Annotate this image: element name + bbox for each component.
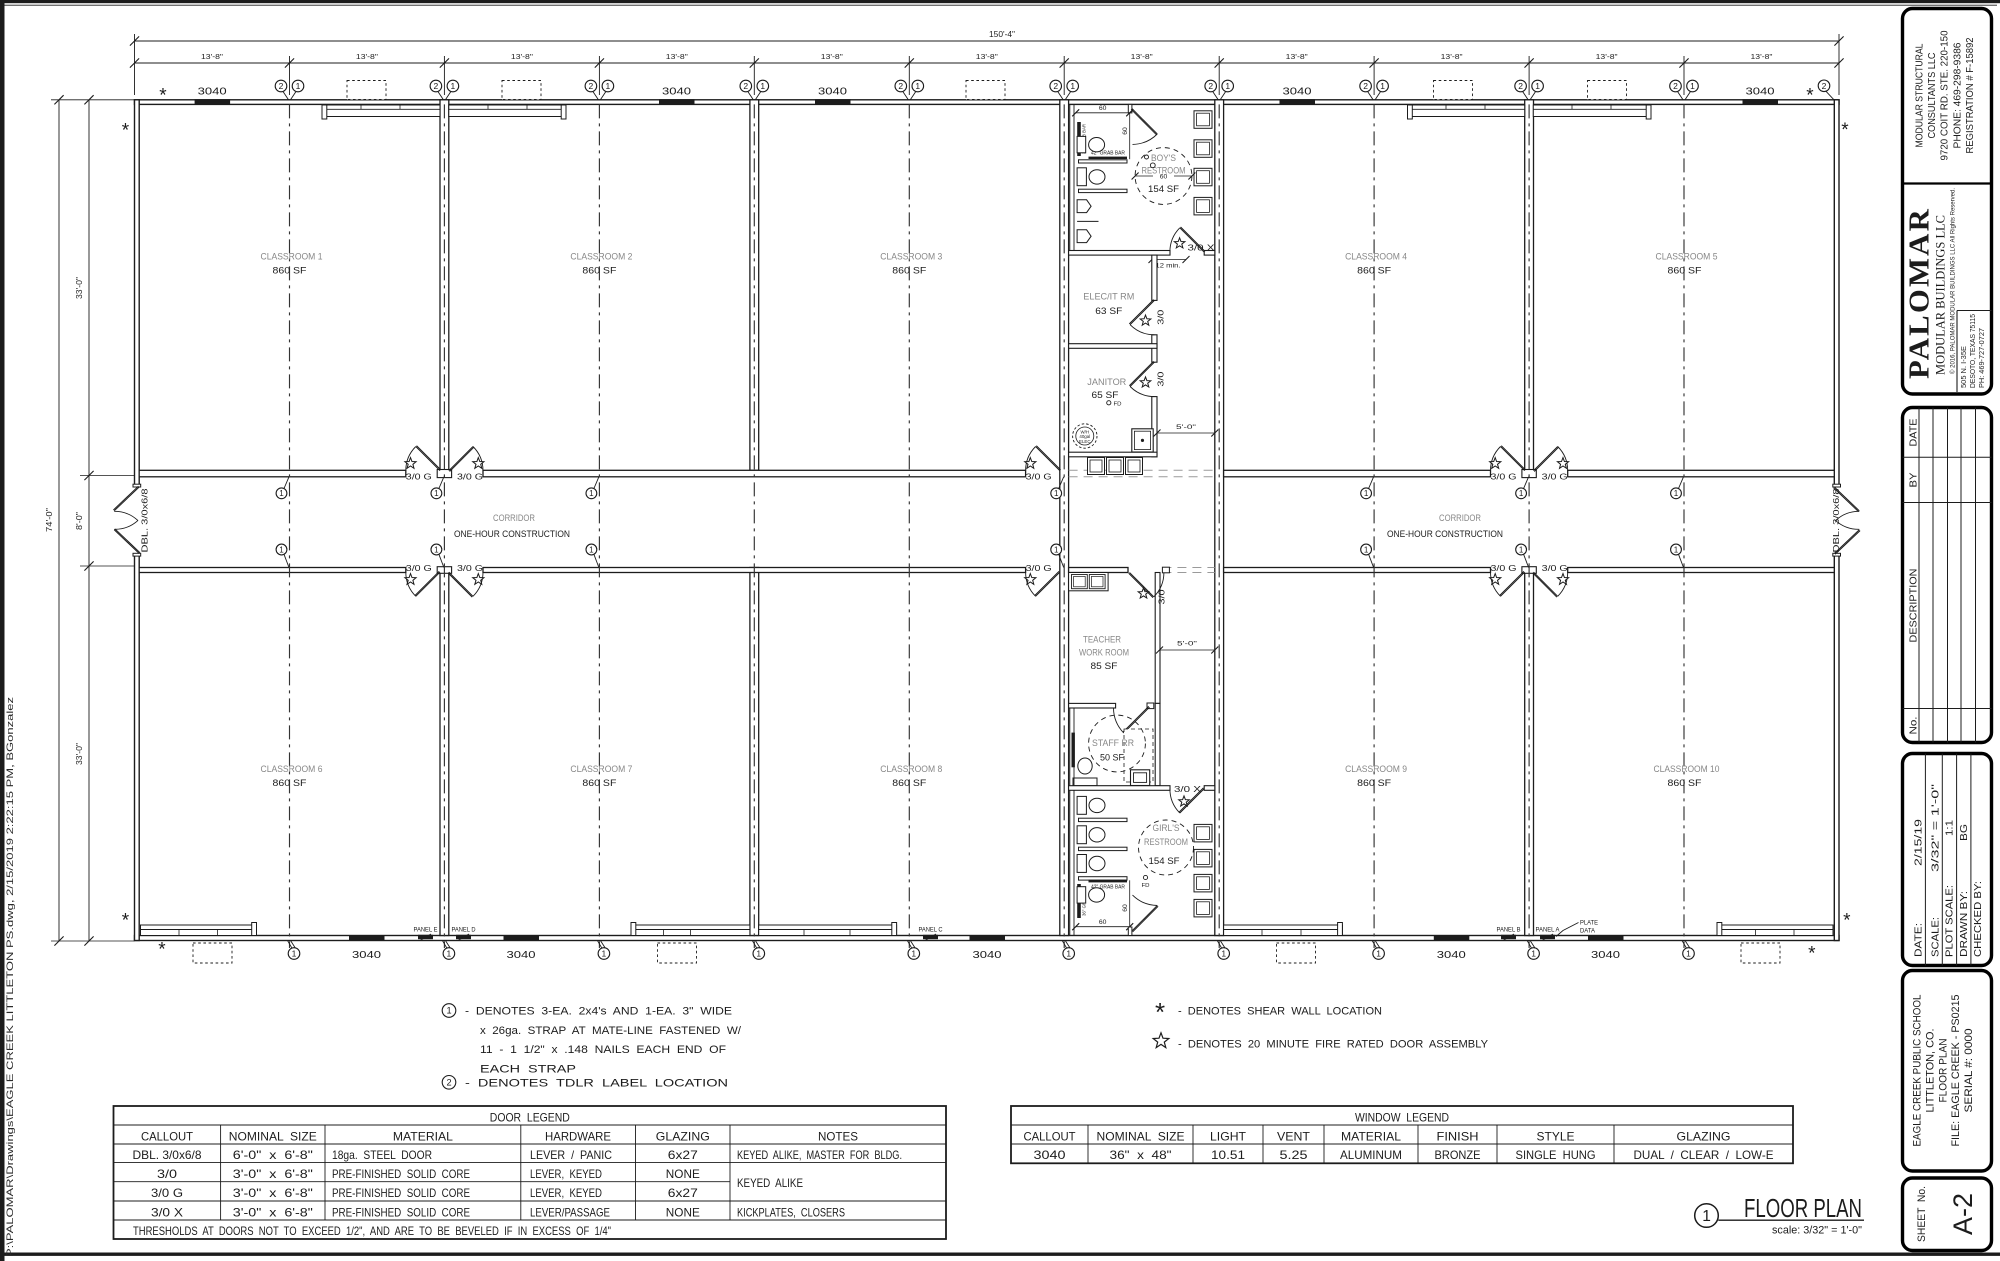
svg-text:*: * xyxy=(122,121,130,142)
svg-text:1: 1 xyxy=(1690,81,1695,91)
svg-text:3040: 3040 xyxy=(1437,949,1466,961)
svg-text:GLAZING: GLAZING xyxy=(1677,1129,1731,1143)
svg-text:3/0 G: 3/0 G xyxy=(1026,563,1052,573)
svg-text:LIGHT: LIGHT xyxy=(1210,1129,1247,1143)
svg-text:FD: FD xyxy=(1142,883,1150,889)
svg-text:SINGLE HUNG: SINGLE HUNG xyxy=(1516,1148,1596,1162)
svg-text:CLASSROOM 1: CLASSROOM 1 xyxy=(261,252,323,263)
svg-text:1: 1 xyxy=(1674,545,1679,554)
svg-text:ONE-HOUR CONSTRUCTION: ONE-HOUR CONSTRUCTION xyxy=(454,529,570,540)
svg-text:DESCRIPTION: DESCRIPTION xyxy=(1909,569,1920,643)
svg-text:3040: 3040 xyxy=(1034,1148,1066,1162)
svg-text:1: 1 xyxy=(1054,489,1059,498)
svg-text:860 SF: 860 SF xyxy=(1668,266,1702,277)
svg-text:36" x 48": 36" x 48" xyxy=(1110,1148,1172,1162)
svg-text:3'-0" x 6'-8": 3'-0" x 6'-8" xyxy=(233,1167,313,1181)
svg-text:12 min.: 12 min. xyxy=(1156,263,1181,270)
svg-text:MODULAR BUILDINGS LLC: MODULAR BUILDINGS LLC xyxy=(1934,215,1948,375)
svg-text:5.25: 5.25 xyxy=(1280,1148,1308,1162)
svg-text:- DENOTES 20 MINUTE FIRE: - DENOTES 20 MINUTE FIRE RATED DOOR ASSE… xyxy=(1178,1039,1488,1051)
svg-text:ALUMINUM: ALUMINUM xyxy=(1340,1148,1402,1162)
svg-text:3040: 3040 xyxy=(1746,86,1775,98)
svg-text:1: 1 xyxy=(589,545,594,554)
svg-text:1: 1 xyxy=(1066,949,1071,959)
svg-text:860 SF: 860 SF xyxy=(582,266,616,277)
svg-text:13'-8": 13'-8" xyxy=(1751,52,1773,61)
svg-text:60: 60 xyxy=(1099,105,1107,112)
svg-text:13'-8": 13'-8" xyxy=(666,52,688,61)
svg-text:DOOR LEGEND: DOOR LEGEND xyxy=(490,1110,570,1124)
svg-text:*: * xyxy=(1806,86,1814,107)
svg-text:CLASSROOM 3: CLASSROOM 3 xyxy=(880,252,942,263)
svg-text:HARDWARE: HARDWARE xyxy=(545,1129,611,1143)
svg-text:6x27: 6x27 xyxy=(668,1186,698,1200)
svg-text:*: * xyxy=(1841,120,1849,141)
svg-text:1: 1 xyxy=(1674,489,1679,498)
svg-text:PRE-FINISHED SOLID CORE: PRE-FINISHED SOLID CORE xyxy=(332,1167,470,1181)
svg-text:LEVER / PANIC: LEVER / PANIC xyxy=(530,1148,612,1162)
svg-text:CONSULTANTS LLC: CONSULTANTS LLC xyxy=(1926,52,1938,138)
svg-text:© 2016, PALOMAR MODULAR BUILDI: © 2016, PALOMAR MODULAR BUILDINGS LLC Al… xyxy=(1949,188,1957,374)
svg-text:60: 60 xyxy=(1160,174,1168,181)
svg-text:DBL. 3/0x6/8: DBL. 3/0x6/8 xyxy=(133,1148,202,1162)
svg-text:13'-8": 13'-8" xyxy=(1131,52,1153,61)
svg-text:BOY'S: BOY'S xyxy=(1151,153,1176,164)
svg-text:ELEC/IT RM: ELEC/IT RM xyxy=(1083,292,1134,303)
svg-text:3/0 X: 3/0 X xyxy=(1188,242,1215,252)
svg-text:FLOOR PLAN: FLOOR PLAN xyxy=(1744,1195,1862,1223)
svg-text:65 SF: 65 SF xyxy=(1092,390,1119,401)
svg-text:2: 2 xyxy=(279,81,284,91)
svg-text:LEVER, KEYED: LEVER, KEYED xyxy=(530,1167,602,1181)
svg-text:1: 1 xyxy=(911,949,916,959)
svg-text:3/0 G: 3/0 G xyxy=(1542,563,1568,573)
svg-text:STAFF RR: STAFF RR xyxy=(1092,738,1134,749)
svg-text:PRE-FINISHED SOLID CORE: PRE-FINISHED SOLID CORE xyxy=(332,1205,470,1219)
svg-text:63 SF: 63 SF xyxy=(1095,306,1122,317)
svg-text:3040: 3040 xyxy=(818,86,847,98)
svg-text:10.51: 10.51 xyxy=(1211,1148,1245,1162)
svg-text:3/0 G: 3/0 G xyxy=(151,1186,183,1200)
svg-text:DBL. 3/0x6/8: DBL. 3/0x6/8 xyxy=(139,488,149,552)
svg-text:1:1: 1:1 xyxy=(1944,820,1956,836)
svg-text:1: 1 xyxy=(760,81,765,91)
svg-text:*: * xyxy=(1808,944,1816,965)
svg-text:3/0 G: 3/0 G xyxy=(406,472,432,482)
svg-text:1: 1 xyxy=(1686,949,1691,959)
svg-text:STYLE: STYLE xyxy=(1537,1129,1575,1143)
svg-text:EACH STRAP: EACH STRAP xyxy=(480,1063,576,1075)
svg-text:x 26ga. STRAP AT MATE-LINE: x 26ga. STRAP AT MATE-LINE FASTENED W/ xyxy=(480,1025,742,1037)
svg-text:FILE: EAGLE CREEK - PS0215: FILE: EAGLE CREEK - PS0215 xyxy=(1950,995,1962,1147)
svg-text:1: 1 xyxy=(451,81,456,91)
svg-text:2: 2 xyxy=(434,81,439,91)
svg-text:CHECKED BY:: CHECKED BY: xyxy=(1972,881,1984,957)
svg-text:860 SF: 860 SF xyxy=(273,266,307,277)
svg-text:MODULAR STRUCTURAL: MODULAR STRUCTURAL xyxy=(1914,43,1926,147)
svg-text:3040: 3040 xyxy=(1283,86,1312,98)
svg-text:KEYED ALIKE: KEYED ALIKE xyxy=(737,1176,803,1190)
svg-text:3/0: 3/0 xyxy=(1157,589,1167,604)
svg-text:154 SF: 154 SF xyxy=(1149,856,1180,867)
svg-text:1: 1 xyxy=(1221,949,1226,959)
svg-text:3/0: 3/0 xyxy=(1156,310,1166,325)
svg-text:DATE:: DATE: xyxy=(1913,923,1925,957)
svg-text:RESTROOM: RESTROOM xyxy=(1144,837,1188,848)
svg-text:1: 1 xyxy=(296,81,301,91)
svg-text:3040: 3040 xyxy=(1591,949,1620,961)
svg-text:1: 1 xyxy=(434,489,439,498)
svg-text:2/15/19: 2/15/19 xyxy=(1913,819,1925,866)
svg-text:ELEC: ELEC xyxy=(1079,439,1090,444)
svg-text:CLASSROOM 8: CLASSROOM 8 xyxy=(880,764,942,775)
svg-text:3/0 X: 3/0 X xyxy=(1174,784,1201,794)
svg-text:CLASSROOM 7: CLASSROOM 7 xyxy=(570,764,632,775)
svg-text:2: 2 xyxy=(1363,81,1368,91)
svg-text:13'-8": 13'-8" xyxy=(1441,52,1463,61)
svg-text:PANEL C: PANEL C xyxy=(919,927,943,934)
svg-text:60: 60 xyxy=(1122,904,1129,912)
svg-text:3/0 G: 3/0 G xyxy=(1491,563,1517,573)
svg-text:MATERIAL: MATERIAL xyxy=(1341,1129,1401,1143)
svg-text:1: 1 xyxy=(1364,545,1369,554)
svg-text:1: 1 xyxy=(1519,545,1524,554)
svg-text:DRAWN BY:: DRAWN BY: xyxy=(1958,891,1970,957)
svg-text:3040: 3040 xyxy=(662,86,691,98)
svg-text:PANEL E: PANEL E xyxy=(414,927,438,934)
svg-text:*: * xyxy=(158,940,166,961)
svg-text:1: 1 xyxy=(1531,949,1536,959)
svg-text:1: 1 xyxy=(279,489,284,498)
svg-text:FD: FD xyxy=(1114,402,1122,408)
svg-text:scale: 3/32" = 1'-0": scale: 3/32" = 1'-0" xyxy=(1772,1225,1862,1237)
svg-text:1: 1 xyxy=(1519,489,1524,498)
svg-text:13'-8": 13'-8" xyxy=(1596,52,1618,61)
svg-text:860 SF: 860 SF xyxy=(582,778,616,789)
svg-text:CLASSROOM 4: CLASSROOM 4 xyxy=(1345,252,1407,263)
svg-text:1: 1 xyxy=(292,949,297,959)
svg-text:SCALE:: SCALE: xyxy=(1929,917,1941,957)
svg-text:PLATE: PLATE xyxy=(1580,920,1598,927)
svg-text:*: * xyxy=(1155,997,1165,1027)
svg-text:CALLOUT: CALLOUT xyxy=(1024,1129,1077,1143)
svg-text:PALOMAR: PALOMAR xyxy=(1905,207,1936,379)
svg-text:P:\PALOMAR\Drawings\EAGLE CREE: P:\PALOMAR\Drawings\EAGLE CREEK LITTLETO… xyxy=(5,697,16,1257)
svg-text:1: 1 xyxy=(1070,81,1075,91)
svg-text:FINISH: FINISH xyxy=(1437,1129,1479,1143)
svg-text:11 - 1 1/2" x .148 NAILS: 11 - 1 1/2" x .148 NAILS EACH END OF xyxy=(480,1044,726,1056)
svg-text:33'-0": 33'-0" xyxy=(75,743,84,765)
svg-text:KICKPLATES, CLOSERS: KICKPLATES, CLOSERS xyxy=(737,1205,845,1219)
svg-text:150'-4": 150'-4" xyxy=(989,30,1015,39)
svg-text:PANEL B: PANEL B xyxy=(1497,927,1521,934)
svg-text:ONE-HOUR CONSTRUCTION: ONE-HOUR CONSTRUCTION xyxy=(1387,529,1503,540)
svg-text:1: 1 xyxy=(1364,489,1369,498)
svg-text:PRE-FINISHED SOLID CORE: PRE-FINISHED SOLID CORE xyxy=(332,1186,470,1200)
svg-text:1: 1 xyxy=(1380,81,1385,91)
svg-text:3040: 3040 xyxy=(973,949,1002,961)
svg-text:6x27: 6x27 xyxy=(668,1148,698,1162)
svg-text:FLOOR PLAN: FLOOR PLAN xyxy=(1937,1038,1949,1102)
svg-text:No.: No. xyxy=(1909,717,1920,735)
svg-text:5'-0": 5'-0" xyxy=(1177,641,1198,648)
svg-text:3/0 G: 3/0 G xyxy=(457,472,483,482)
svg-text:NOMINAL SIZE: NOMINAL SIZE xyxy=(1097,1129,1185,1143)
svg-text:CLASSROOM 9: CLASSROOM 9 xyxy=(1345,764,1407,775)
svg-text:A-2: A-2 xyxy=(1948,1193,1978,1235)
svg-text:3/0 G: 3/0 G xyxy=(1542,472,1568,482)
svg-text:NONE: NONE xyxy=(666,1167,700,1181)
svg-text:3040: 3040 xyxy=(352,949,381,961)
svg-text:13'-8": 13'-8" xyxy=(356,52,378,61)
svg-text:154 SF: 154 SF xyxy=(1148,184,1179,195)
svg-text:WORK ROOM: WORK ROOM xyxy=(1079,648,1129,659)
svg-text:*: * xyxy=(122,911,130,932)
svg-text:3040: 3040 xyxy=(507,949,536,961)
svg-text:*: * xyxy=(159,86,167,107)
svg-text:PANEL D: PANEL D xyxy=(452,927,476,934)
svg-text:LITTLETON, CO.: LITTLETON, CO. xyxy=(1924,1029,1936,1113)
svg-text:THRESHOLDS AT DOORS NOT TO: THRESHOLDS AT DOORS NOT TO EXCEED 1/2", … xyxy=(133,1224,611,1238)
svg-text:EAGLE CREEK PUBLIC SCHOOL: EAGLE CREEK PUBLIC SCHOOL xyxy=(1912,995,1924,1147)
svg-text:CLASSROOM 6: CLASSROOM 6 xyxy=(261,764,323,775)
svg-text:13'-8": 13'-8" xyxy=(1286,52,1308,61)
svg-text:1: 1 xyxy=(606,81,611,91)
svg-text:3/0: 3/0 xyxy=(157,1167,177,1181)
svg-text:3/0 G: 3/0 G xyxy=(406,563,432,573)
svg-text:1: 1 xyxy=(1376,949,1381,959)
svg-text:5'-0": 5'-0" xyxy=(1176,424,1197,431)
svg-text:1: 1 xyxy=(1054,545,1059,554)
svg-text:1: 1 xyxy=(446,1006,451,1016)
svg-text:860 SF: 860 SF xyxy=(892,778,926,789)
svg-text:BRONZE: BRONZE xyxy=(1435,1148,1481,1162)
svg-text:REGISTRATION # F-15892: REGISTRATION # F-15892 xyxy=(1964,37,1976,153)
svg-text:3/0 X: 3/0 X xyxy=(151,1205,183,1219)
svg-text:CORRIDOR: CORRIDOR xyxy=(493,513,535,524)
svg-text:- DENOTES SHEAR WALL LOCAT: - DENOTES SHEAR WALL LOCATION xyxy=(1178,1006,1382,1018)
svg-text:2: 2 xyxy=(1053,81,1058,91)
svg-text:33'-0": 33'-0" xyxy=(75,277,84,299)
svg-text:DATA: DATA xyxy=(1580,928,1596,935)
svg-text:2: 2 xyxy=(898,81,903,91)
svg-text:GLAZING: GLAZING xyxy=(656,1129,710,1143)
svg-text:PANEL A: PANEL A xyxy=(1536,927,1561,934)
svg-text:CLASSROOM 2: CLASSROOM 2 xyxy=(570,252,632,263)
svg-text:LEVER/PASSAGE: LEVER/PASSAGE xyxy=(530,1205,610,1219)
svg-text:60: 60 xyxy=(1099,919,1107,926)
svg-text:6'-0" x 6'-8": 6'-0" x 6'-8" xyxy=(233,1148,313,1162)
svg-text:1: 1 xyxy=(434,545,439,554)
svg-text:2: 2 xyxy=(446,1078,451,1088)
svg-text:DESOTO, TEXAS 75115: DESOTO, TEXAS 75115 xyxy=(1968,314,1977,388)
svg-text:NOTES: NOTES xyxy=(818,1129,858,1143)
svg-text:DATE: DATE xyxy=(1909,418,1920,446)
svg-text:18ga. STEEL DOOR: 18ga. STEEL DOOR xyxy=(332,1148,432,1162)
svg-text:LEVER, KEYED: LEVER, KEYED xyxy=(530,1186,602,1200)
svg-text:3/32" = 1'-0": 3/32" = 1'-0" xyxy=(1929,784,1941,872)
svg-text:WINDOW LEGEND: WINDOW LEGEND xyxy=(1355,1110,1449,1124)
svg-text:74'-0": 74'-0" xyxy=(45,508,54,532)
svg-text:50 SF: 50 SF xyxy=(1100,753,1124,764)
svg-text:KEYED ALIKE, MASTER FOR BL: KEYED ALIKE, MASTER FOR BLDG. xyxy=(737,1148,902,1162)
svg-text:1: 1 xyxy=(602,949,607,959)
svg-text:1: 1 xyxy=(589,489,594,498)
svg-text:GIRL'S: GIRL'S xyxy=(1153,823,1180,834)
svg-text:PHONE: 469-298-9386: PHONE: 469-298-9386 xyxy=(1951,42,1963,148)
svg-text:DBL. 3/0x6/8: DBL. 3/0x6/8 xyxy=(1831,488,1841,552)
svg-text:2: 2 xyxy=(589,81,594,91)
svg-text:TEACHER: TEACHER xyxy=(1083,635,1121,646)
svg-text:CORRIDOR: CORRIDOR xyxy=(1439,513,1481,524)
svg-text:1: 1 xyxy=(447,949,452,959)
svg-text:VENT: VENT xyxy=(1277,1129,1311,1143)
svg-text:860 SF: 860 SF xyxy=(273,778,307,789)
svg-text:860 SF: 860 SF xyxy=(1357,266,1391,277)
svg-text:JANITOR: JANITOR xyxy=(1087,377,1126,388)
svg-text:2: 2 xyxy=(1822,81,1827,91)
svg-text:DUAL / CLEAR / LOW-E: DUAL / CLEAR / LOW-E xyxy=(1634,1148,1774,1162)
svg-text:9720 COIT RD. STE. 220-150: 9720 COIT RD. STE. 220-150 xyxy=(1939,30,1951,160)
svg-text:NONE: NONE xyxy=(666,1205,700,1219)
svg-text:NOMINAL SIZE: NOMINAL SIZE xyxy=(229,1129,317,1143)
svg-text:505 N. I-35E: 505 N. I-35E xyxy=(1959,346,1968,388)
svg-text:CLASSROOM 5: CLASSROOM 5 xyxy=(1656,252,1718,263)
svg-text:860 SF: 860 SF xyxy=(1668,778,1702,789)
svg-text:3'-0" x 6'-8": 3'-0" x 6'-8" xyxy=(233,1186,313,1200)
svg-text:3040: 3040 xyxy=(198,86,227,98)
svg-text:PH: 469-727-0727: PH: 469-727-0727 xyxy=(1977,328,1986,388)
svg-text:3/0: 3/0 xyxy=(1156,371,1166,386)
svg-text:1: 1 xyxy=(915,81,920,91)
svg-text:BG: BG xyxy=(1958,824,1970,841)
svg-text:PLOT SCALE:: PLOT SCALE: xyxy=(1944,885,1956,957)
svg-text:2: 2 xyxy=(743,81,748,91)
svg-text:85 SF: 85 SF xyxy=(1091,661,1118,672)
svg-text:1: 1 xyxy=(1225,81,1230,91)
svg-text:- DENOTES 3-EA. 2x4's AND: - DENOTES 3-EA. 2x4's AND 1-EA. 3" WIDE xyxy=(465,1006,732,1018)
svg-text:8'-0": 8'-0" xyxy=(75,512,84,530)
svg-text:13'-8": 13'-8" xyxy=(821,52,843,61)
svg-text:- DENOTES TDLR LABEL LOCAT: - DENOTES TDLR LABEL LOCATION xyxy=(465,1078,728,1090)
svg-text:860 SF: 860 SF xyxy=(1357,778,1391,789)
svg-text:1: 1 xyxy=(279,545,284,554)
svg-text:SERIAL #: 0000: SERIAL #: 0000 xyxy=(1963,1029,1975,1113)
svg-text:860 SF: 860 SF xyxy=(892,266,926,277)
svg-text:SHEET No.: SHEET No. xyxy=(1916,1186,1928,1242)
svg-text:60: 60 xyxy=(1122,127,1129,135)
svg-text:3'-0" x 6'-8": 3'-0" x 6'-8" xyxy=(233,1205,313,1219)
svg-text:1: 1 xyxy=(756,949,761,959)
svg-text:1: 1 xyxy=(1702,1208,1711,1225)
svg-text:3/0 G: 3/0 G xyxy=(1491,472,1517,482)
svg-text:3/0 G: 3/0 G xyxy=(1026,472,1052,482)
svg-text:*: * xyxy=(1843,911,1851,932)
svg-text:BY: BY xyxy=(1909,472,1920,487)
svg-text:2: 2 xyxy=(1673,81,1678,91)
svg-text:3/0 G: 3/0 G xyxy=(457,563,483,573)
svg-text:CLASSROOM 10: CLASSROOM 10 xyxy=(1654,764,1720,775)
svg-text:1: 1 xyxy=(1535,81,1540,91)
svg-text:CALLOUT: CALLOUT xyxy=(141,1129,194,1143)
svg-text:13'-8": 13'-8" xyxy=(201,52,223,61)
svg-text:13'-8": 13'-8" xyxy=(511,52,533,61)
svg-text:2: 2 xyxy=(1208,81,1213,91)
svg-text:2: 2 xyxy=(1518,81,1523,91)
svg-text:13'-8": 13'-8" xyxy=(976,52,998,61)
svg-text:MATERIAL: MATERIAL xyxy=(393,1129,453,1143)
